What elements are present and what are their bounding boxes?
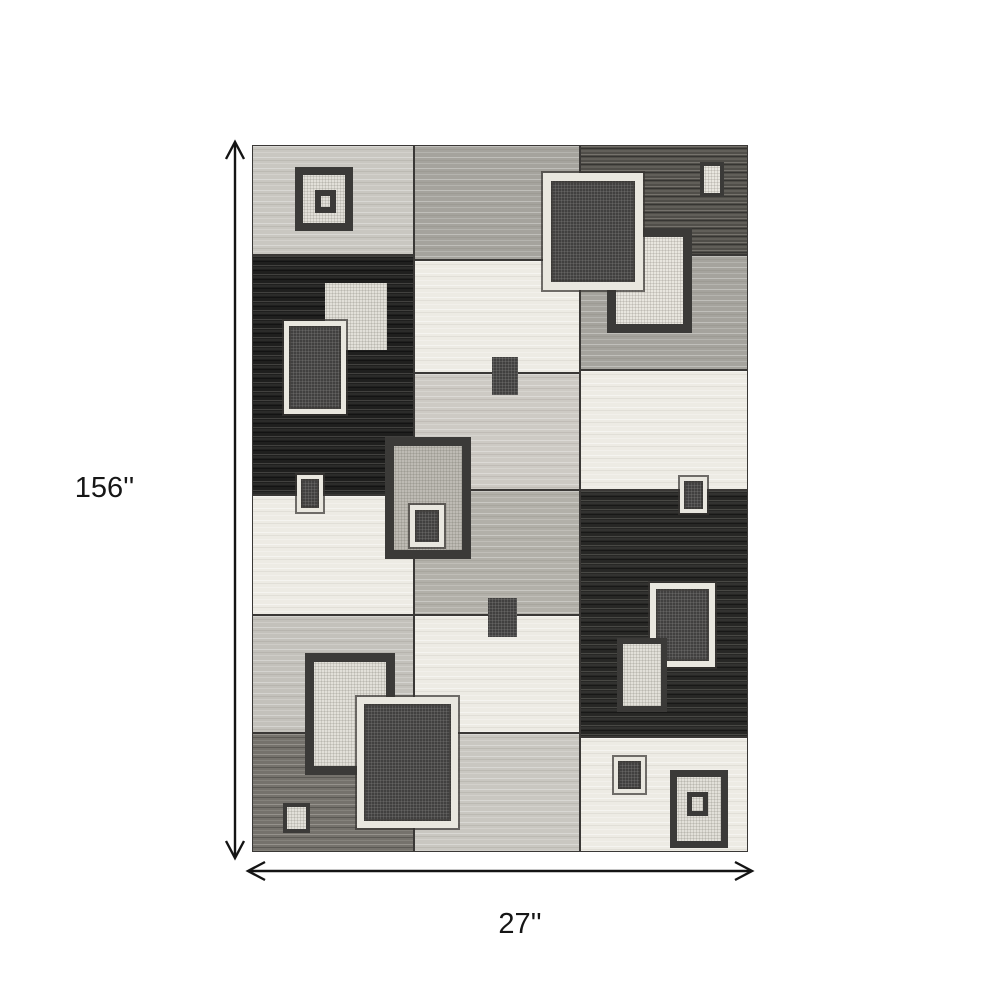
rug-motif-square: [284, 321, 346, 414]
height-dimension-label: 156'': [52, 473, 157, 505]
rug-motif-square: [543, 173, 643, 290]
rug-motif-square: [283, 803, 310, 833]
rug-motif-square: [617, 638, 667, 712]
rug-motif-square: [680, 477, 707, 513]
rug-motif-square: [614, 757, 645, 793]
width-dimension-label: 27'': [465, 909, 575, 941]
rug-motif-square: [492, 357, 518, 395]
rug-motif-square: [488, 598, 517, 637]
height-dimension-arrow: [218, 134, 252, 866]
rug-motif-square: [410, 505, 444, 547]
rug-dimension-diagram: 156'' 27'': [0, 0, 1000, 1000]
rug-motif-square: [687, 792, 708, 816]
rug-motif-square: [315, 190, 336, 213]
rug-motif-square: [700, 162, 724, 197]
rug: [252, 145, 748, 852]
rug-block: [581, 371, 747, 489]
width-dimension-arrow: [238, 854, 762, 888]
rug-motif-square: [297, 475, 323, 512]
rug-motif-square: [357, 697, 458, 828]
